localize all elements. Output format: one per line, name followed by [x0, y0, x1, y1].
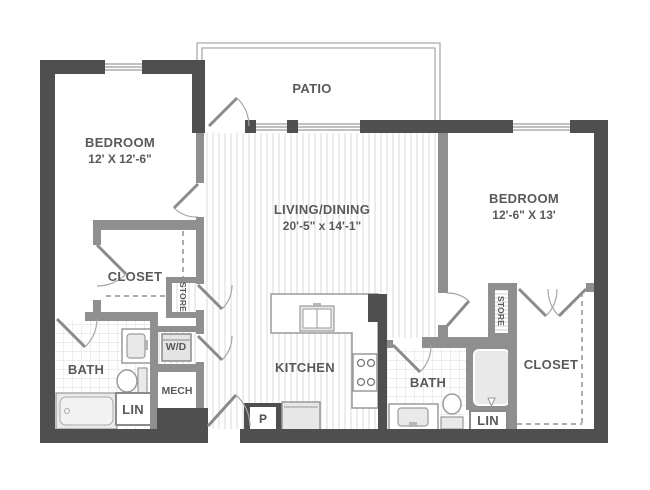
- vanity-sink-left: [122, 329, 151, 363]
- window-living-1: [256, 120, 287, 133]
- room-label-store-right: STORE: [496, 296, 506, 326]
- room-dims-bedroom-right: 12'-6" X 13': [492, 208, 556, 222]
- stove: [353, 354, 377, 391]
- bathtub: [56, 393, 117, 429]
- room-label-bedroom-right: BEDROOM: [489, 191, 559, 206]
- room-label-bath-left: BATH: [68, 362, 104, 377]
- kitchen-sink: [300, 303, 334, 331]
- room-label-living-dining: LIVING/DINING: [274, 202, 370, 217]
- room-label-patio: PATIO: [292, 81, 331, 96]
- fridge: [282, 402, 320, 432]
- toilet-left: [117, 368, 147, 393]
- floor-plan-drawing: PATIO BEDROOM 12' X 12'-6" LIVING/DINING…: [0, 0, 650, 490]
- window-bedroom-right: [513, 120, 570, 133]
- room-label-kitchen: KITCHEN: [275, 360, 335, 375]
- window-bedroom-left: [105, 60, 142, 74]
- window-living-2: [298, 120, 360, 133]
- vanity-sink-right: [389, 404, 438, 430]
- room-label-wd: W/D: [166, 341, 187, 353]
- room-label-mech: MECH: [162, 385, 193, 397]
- room-label-bedroom-left: BEDROOM: [85, 135, 155, 150]
- shower: [469, 344, 514, 410]
- room-label-lin-right: LIN: [477, 413, 499, 428]
- room-label-bath-right: BATH: [410, 375, 446, 390]
- room-dims-bedroom-left: 12' X 12'-6": [88, 152, 151, 166]
- room-dims-living-dining: 20'-5" x 14'-1": [283, 219, 361, 233]
- floor-plan: PATIO BEDROOM 12' X 12'-6" LIVING/DINING…: [0, 0, 650, 490]
- room-label-lin-left: LIN: [122, 402, 144, 417]
- room-label-store-left: STORE: [178, 282, 188, 312]
- room-label-pantry: P: [259, 412, 267, 426]
- room-label-closet-left: CLOSET: [108, 269, 163, 284]
- room-label-closet-right: CLOSET: [524, 357, 579, 372]
